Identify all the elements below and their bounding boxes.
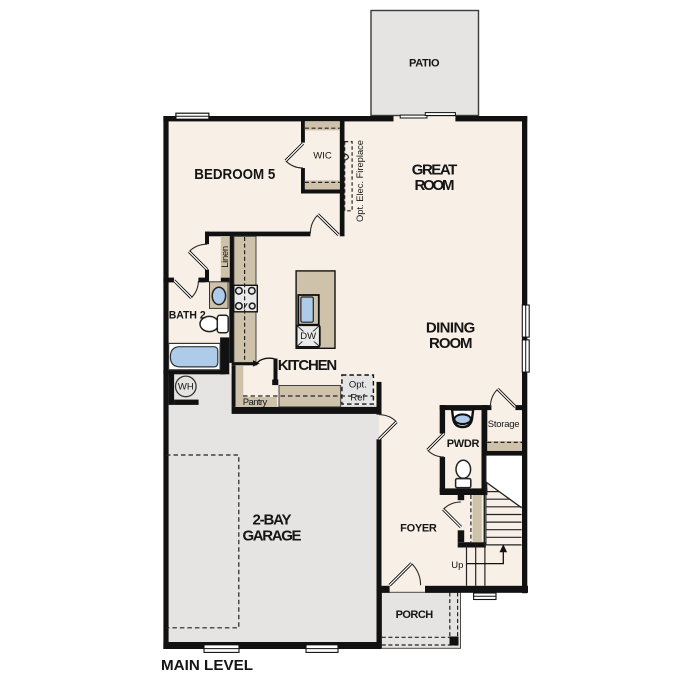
svg-text:PATIO: PATIO: [409, 58, 440, 70]
svg-text:Opt. Elec. Fireplace: Opt. Elec. Fireplace: [355, 140, 366, 222]
svg-text:Opt.: Opt.: [349, 380, 367, 391]
svg-text:PWDR: PWDR: [447, 438, 480, 450]
svg-text:Ref: Ref: [350, 392, 365, 403]
svg-text:DINING: DINING: [426, 320, 476, 337]
svg-text:DW: DW: [300, 331, 316, 342]
svg-text:ROOM: ROOM: [415, 177, 455, 194]
svg-text:MAIN LEVEL: MAIN LEVEL: [161, 657, 253, 674]
svg-text:Up: Up: [451, 560, 463, 571]
svg-text:KITCHEN: KITCHEN: [278, 357, 338, 374]
svg-text:WH: WH: [178, 381, 194, 392]
svg-text:FOYER: FOYER: [400, 523, 437, 535]
svg-text:ROOM: ROOM: [429, 335, 473, 352]
svg-text:BATH 2: BATH 2: [169, 309, 206, 321]
svg-text:PORCH: PORCH: [396, 609, 434, 621]
svg-text:WIC: WIC: [313, 151, 332, 162]
svg-text:Storage: Storage: [488, 419, 520, 430]
svg-text:BEDROOM 5: BEDROOM 5: [194, 166, 275, 183]
svg-text:Linen: Linen: [220, 246, 231, 268]
svg-text:2-BAY: 2-BAY: [253, 512, 292, 529]
svg-text:Pantry: Pantry: [243, 397, 268, 408]
svg-text:GARAGE: GARAGE: [243, 528, 302, 545]
